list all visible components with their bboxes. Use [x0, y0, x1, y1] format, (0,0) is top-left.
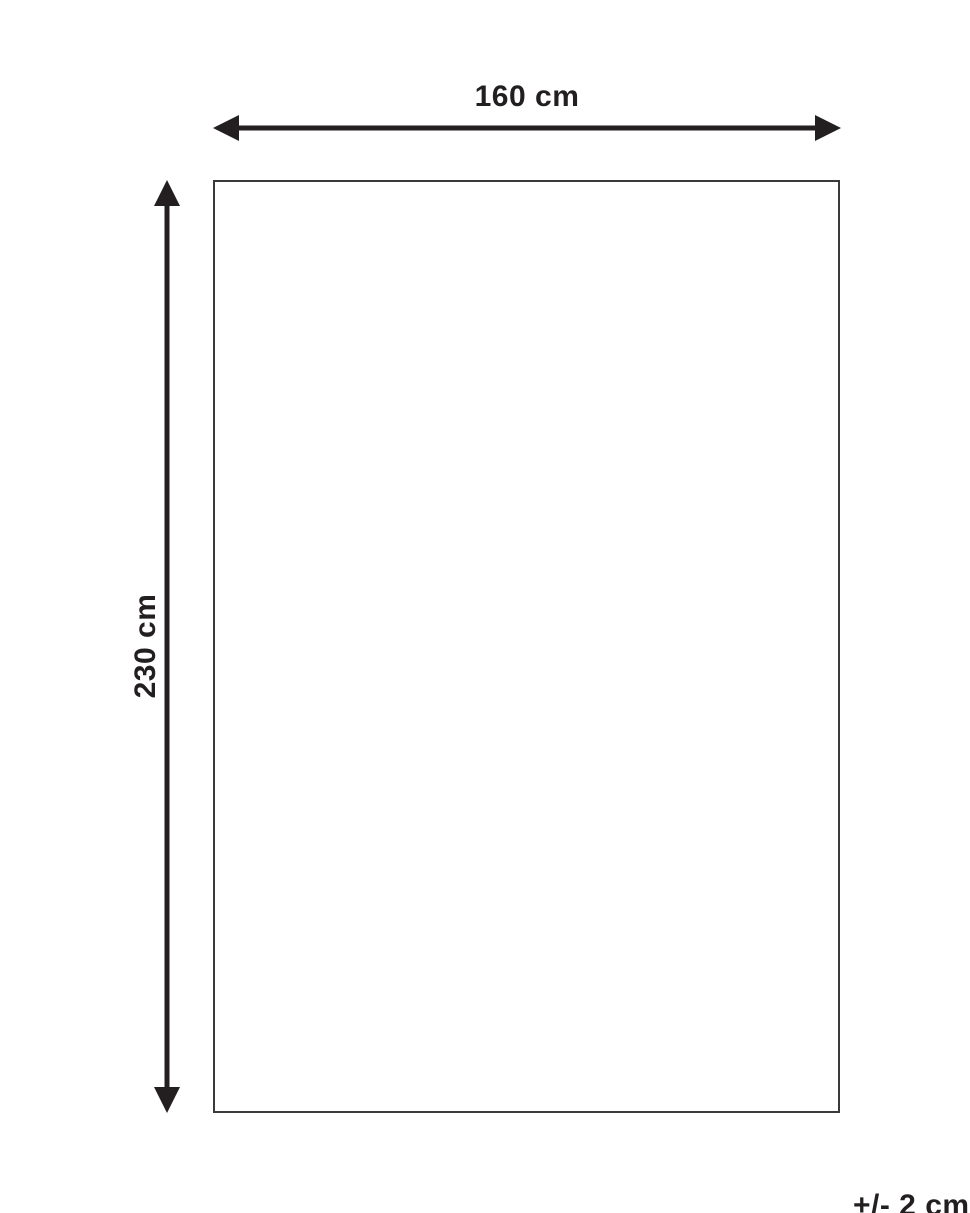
- product-outline-rect: [213, 180, 840, 1113]
- width-dimension-arrow: [207, 110, 847, 146]
- arrowhead-right-icon: [815, 115, 841, 141]
- tolerance-label: +/- 2 cm: [853, 1191, 970, 1213]
- arrowhead-up-icon: [154, 180, 180, 206]
- width-dimension-label: 160 cm: [207, 82, 847, 112]
- height-dimension-label-wrap: 230 cm: [128, 586, 164, 706]
- height-dimension-label: 230 cm: [131, 594, 161, 699]
- arrowhead-down-icon: [154, 1087, 180, 1113]
- dimension-diagram: 160 cm 230 cm +/- 2 cm: [0, 0, 970, 1213]
- arrowhead-left-icon: [213, 115, 239, 141]
